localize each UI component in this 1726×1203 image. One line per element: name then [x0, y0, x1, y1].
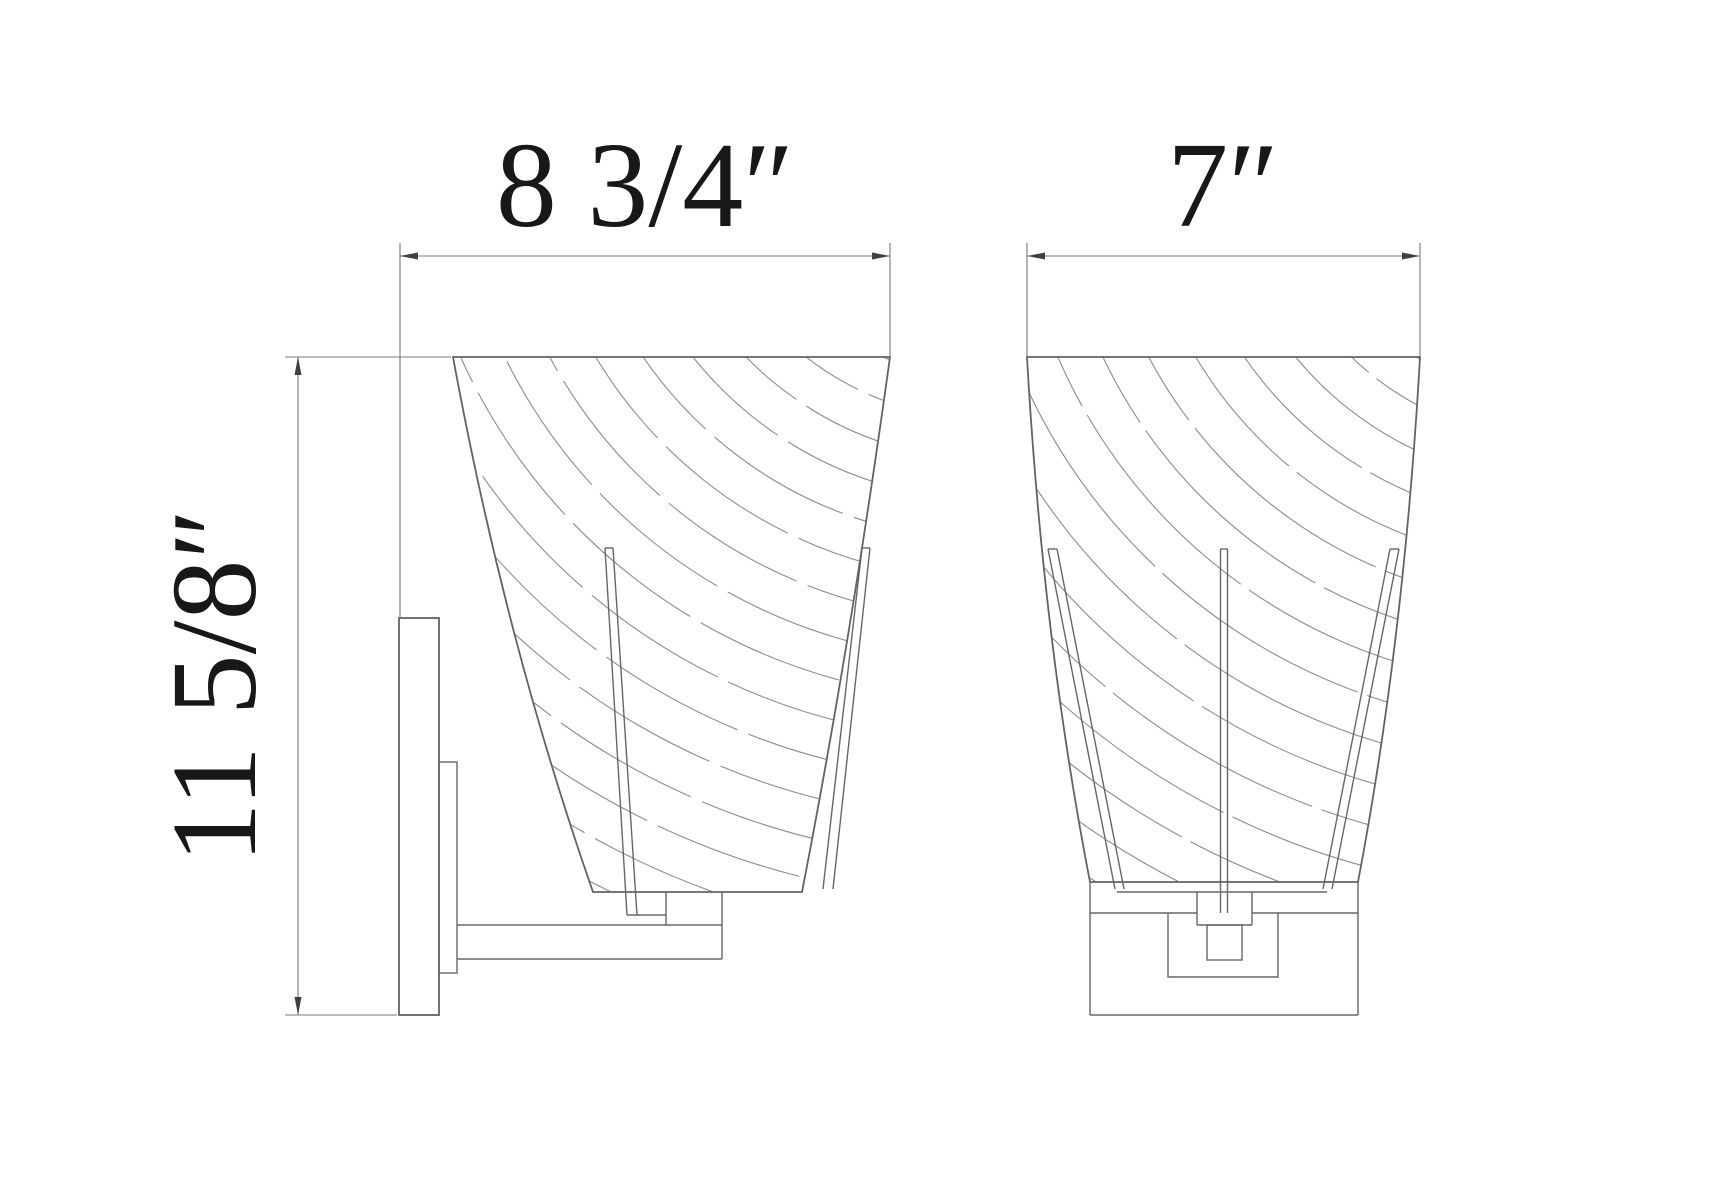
swirl-line — [1300, 0, 1726, 400]
swirl-line — [330, 0, 1650, 780]
mounting-block — [439, 762, 457, 973]
swirl-line — [849, 0, 1726, 851]
bracket-frame — [1168, 913, 1278, 977]
swirl-line — [1259, 0, 1726, 441]
socket-cup — [1197, 892, 1252, 925]
arrowhead-right — [1402, 253, 1420, 260]
swirl-line — [1095, 0, 1726, 605]
swirl-line — [972, 0, 1726, 728]
arrowhead-left — [400, 253, 418, 260]
bracket-knob — [1207, 925, 1242, 960]
glass-shade-outline — [1027, 357, 1420, 882]
arrowhead-top — [295, 357, 302, 375]
mounting-arm — [457, 925, 722, 959]
swirl-line — [530, 0, 1450, 580]
wall-plate — [399, 618, 439, 1015]
swirl-line — [1177, 0, 1726, 523]
glass-swirl-texture — [130, 0, 1726, 980]
holder-strip-right — [1323, 549, 1399, 889]
strip-line — [833, 548, 870, 889]
bracket-detail — [1168, 913, 1278, 977]
arrowhead-left — [1027, 253, 1045, 260]
swirl-line — [210, 0, 1726, 900]
side-view — [130, 0, 1726, 1015]
swirl-line — [490, 0, 1490, 620]
swirl-line — [410, 0, 1570, 700]
swirl-line — [570, 0, 1410, 540]
dimension-label: 7″ — [1167, 118, 1279, 253]
dimension-overall-height: 11 5/8″ — [147, 357, 451, 1015]
swirl-line — [250, 0, 1726, 860]
swirl-line — [931, 0, 1726, 769]
dimension-label: 8 3/4″ — [496, 118, 794, 253]
swirl-line — [1013, 0, 1726, 687]
strip-line — [1057, 549, 1124, 889]
dimension-side-view-width: 8 3/4″ — [400, 118, 890, 618]
glass-shade-outline — [453, 357, 890, 892]
swirl-line — [1136, 0, 1726, 564]
arrowhead-right — [872, 253, 890, 260]
technical-drawing: 8 3/4″ 7″ 11 5/8″ — [0, 0, 1726, 1203]
swirl-line — [450, 0, 1530, 660]
swirl-line — [370, 0, 1610, 740]
dimension-front-view-width: 7″ — [1027, 118, 1420, 357]
swirl-line — [890, 0, 1726, 810]
swirl-line — [170, 0, 1726, 940]
strip-line — [1323, 549, 1390, 889]
fitter-band — [1090, 882, 1358, 1015]
dimension-label: 11 5/8″ — [147, 509, 282, 864]
drawing-canvas: 8 3/4″ 7″ 11 5/8″ — [0, 0, 1726, 1203]
holder-strip-left — [1048, 549, 1124, 889]
arrowhead-bottom — [295, 997, 302, 1015]
swirl-line — [130, 0, 1726, 980]
swirl-line — [1218, 0, 1726, 482]
